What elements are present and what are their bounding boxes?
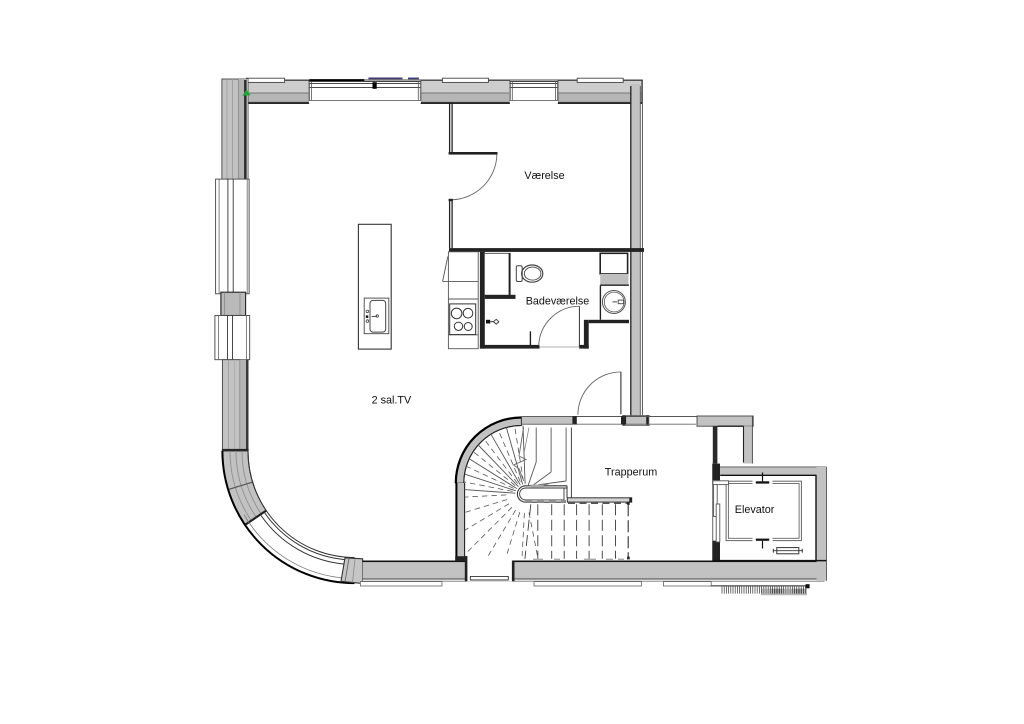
svg-text:2 sal.TV: 2 sal.TV xyxy=(372,395,412,407)
svg-text:Værelse: Værelse xyxy=(524,170,564,182)
svg-text:Elevator: Elevator xyxy=(735,504,775,516)
svg-text:Badeværelse: Badeværelse xyxy=(526,296,590,308)
svg-text:Trapperum: Trapperum xyxy=(605,467,657,479)
